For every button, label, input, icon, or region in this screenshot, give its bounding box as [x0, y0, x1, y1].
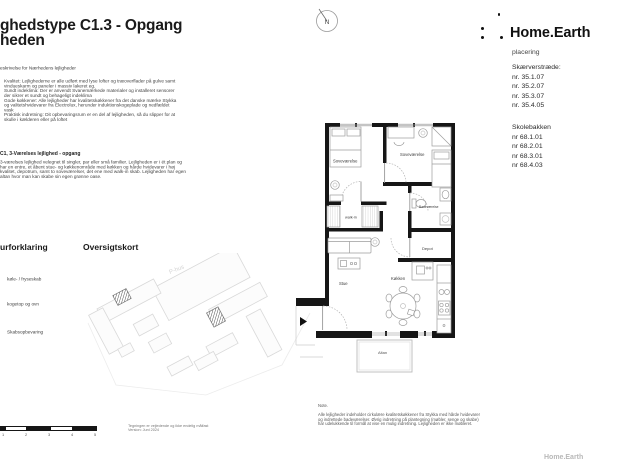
- scalebar-ticks: 1 2 3 4 5: [0, 433, 110, 441]
- document-page: { "header": { "title_visible": "ghedstyp…: [0, 0, 625, 460]
- disclaimer-line: Version: Juni 2024: [128, 428, 208, 432]
- sofa: [328, 238, 371, 253]
- plant: [371, 238, 380, 247]
- scalebar-tick: 5: [94, 433, 96, 437]
- apartment-section: C1, 3-Værelses lejlighed - opgang: [0, 151, 134, 159]
- unit-number: nr. 35.3.07: [512, 92, 561, 102]
- walls: [296, 123, 455, 338]
- note-heading: Note.: [318, 404, 328, 409]
- bathroom-sink: [440, 188, 451, 201]
- unit-number: nr. 35.1.07: [512, 73, 561, 83]
- street-group-1: Skærverstræde: nr. 35.1.07 nr. 35.2.07 n…: [512, 63, 561, 111]
- note-body-wrap: Alle lejligheder indeholder cirkulære kv…: [318, 413, 483, 436]
- single-bed: [432, 150, 451, 187]
- balcony: [357, 340, 412, 372]
- room-label-bedroom1: Soveværelse: [333, 159, 358, 164]
- unit-number: nr. 35.2.07: [512, 82, 561, 92]
- apartment-body: 3-værelses lejlighed velegnet til single…: [0, 160, 186, 179]
- project-name: heden: [0, 32, 45, 50]
- kitchen-sink-unit: [412, 262, 433, 280]
- room-label-stue: Stue: [339, 281, 348, 286]
- kitchen-counter: [437, 265, 451, 333]
- room-label-bathroom: Badeværelse: [419, 205, 439, 209]
- apartment-heading: C1, 3-Værelses lejlighed - opgang: [0, 151, 80, 156]
- unit-number: nr 68.3.01: [512, 152, 551, 162]
- legend-item-storage: Skabsopbevaring: [7, 330, 67, 338]
- room-label-depot: Depot: [422, 246, 434, 251]
- wardrobe: [432, 127, 451, 146]
- scalebar-tick: 3: [48, 433, 50, 437]
- description-paragraphs: Kvalitet: Lejlighederne er alle udført m…: [4, 79, 184, 151]
- room-label-kitchen: Køkken: [391, 276, 406, 281]
- desk: [388, 127, 414, 146]
- street-group-2: Skolebakken nr 68.1.01 nr 68.2.01 nr 68.…: [512, 123, 551, 171]
- legend-item-fridge: køle- / fryseskab: [7, 277, 64, 285]
- entrance-arrow-icon: [300, 317, 307, 326]
- site-map: P-hus: [86, 253, 312, 400]
- floor-plan: Soveværelse Soveværelse walk-in Badevære…: [293, 98, 483, 388]
- legend-item-stove: kogetop og ovn: [7, 302, 60, 310]
- dining-table: [386, 287, 420, 326]
- apartment-body-wrap: 3-værelses lejlighed velegnet til single…: [0, 160, 190, 192]
- dresser: [330, 195, 343, 201]
- unit-number: nr 68.2.01: [512, 142, 551, 152]
- plant: [331, 181, 340, 190]
- unit-number: nr 68.1.01: [512, 133, 551, 143]
- description-heading: eskrivelse for Nærhedens lejligheder: [0, 66, 76, 71]
- room-label-walkin: walk-in: [345, 216, 357, 220]
- room-label-altan: Altan: [378, 350, 387, 355]
- drawing-disclaimer: Tegningen er vejledende og ikke endelig …: [128, 424, 267, 438]
- description-paragraph: Praktisk indretning: Dit opbevaringsrum …: [4, 113, 178, 123]
- description-paragraph: Gode køkkener: Alle lejligheder har kval…: [4, 98, 178, 112]
- unit-number: nr. 35.4.05: [512, 101, 561, 111]
- building-outlines: [89, 253, 282, 376]
- scalebar-graphic: [0, 426, 98, 431]
- note-section: Note.: [318, 404, 335, 412]
- compass-n-label: N: [325, 19, 330, 26]
- unit-number: nr 68.4.03: [512, 161, 551, 171]
- scalebar-tick: 2: [25, 433, 27, 437]
- placering-heading: placering: [512, 49, 540, 56]
- coffee-table: [338, 258, 360, 269]
- overview-heading: Oversigtskort: [83, 242, 138, 252]
- legend-heading: urforklaring: [0, 242, 48, 252]
- note-body: Alle lejligheder indeholder cirkulære kv…: [318, 413, 481, 427]
- north-arrow-icon: N: [312, 6, 342, 36]
- plant: [419, 129, 428, 138]
- street-name: Skærverstræde:: [512, 63, 561, 73]
- scalebar-tick: 4: [71, 433, 73, 437]
- brand-name: Home.Earth: [510, 25, 590, 41]
- scalebar-tick: 1: [2, 433, 4, 437]
- street-name: Skolebakken: [512, 123, 551, 133]
- room-label-bedroom2: Soveværelse: [400, 152, 425, 157]
- washing-machine: [440, 213, 451, 225]
- description-section: eskrivelse for Nærhedens lejligheder: [0, 66, 127, 74]
